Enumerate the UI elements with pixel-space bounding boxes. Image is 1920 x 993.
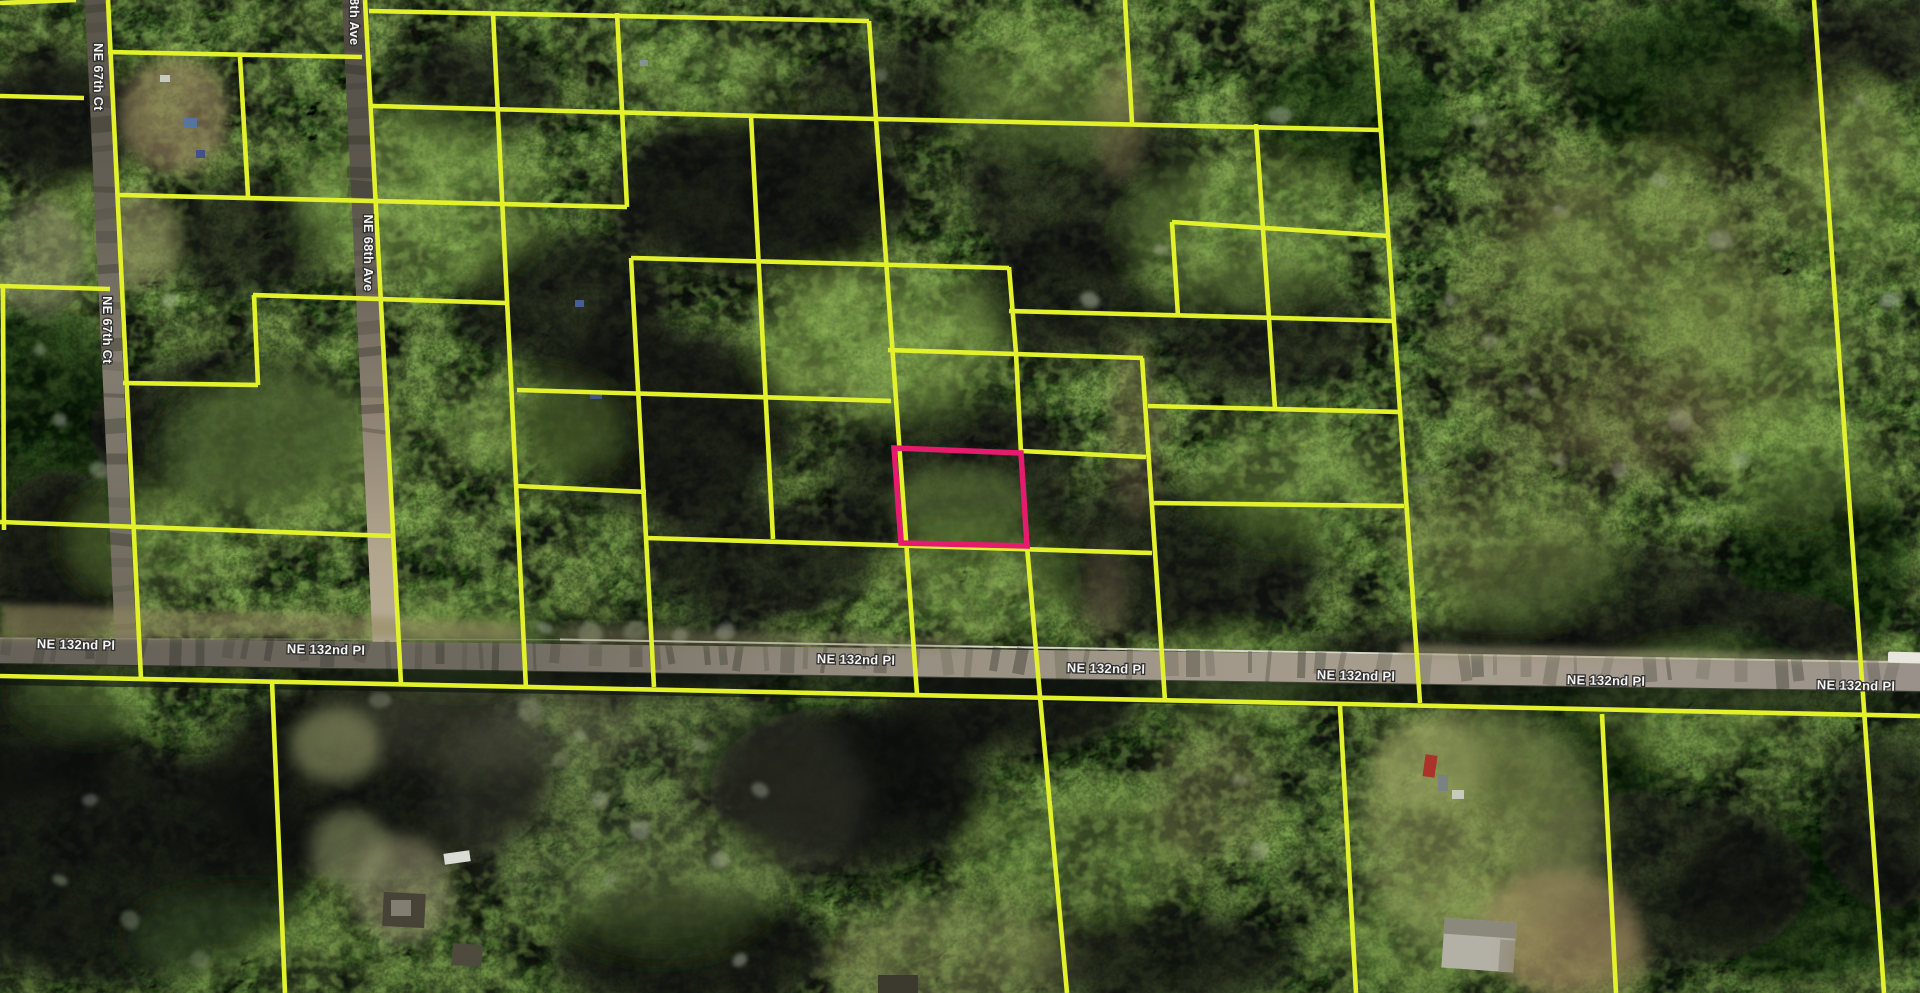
svg-text:68th Ave: 68th Ave <box>347 0 362 45</box>
svg-text:NE 132nd Pl: NE 132nd Pl <box>287 641 366 658</box>
svg-text:NE 132nd Pl: NE 132nd Pl <box>1567 672 1646 689</box>
svg-text:NE 132nd Pl: NE 132nd Pl <box>37 636 116 653</box>
svg-text:NE 132nd Pl: NE 132nd Pl <box>1067 660 1146 677</box>
svg-text:NE 68th Ave: NE 68th Ave <box>361 214 376 291</box>
svg-text:NE 67th Ct: NE 67th Ct <box>91 43 106 111</box>
svg-text:NE 132nd Pl: NE 132nd Pl <box>1317 667 1396 684</box>
svg-text:NE 132nd Pl: NE 132nd Pl <box>817 651 896 668</box>
svg-text:NE 67th Ct: NE 67th Ct <box>100 296 115 364</box>
svg-text:NE 132nd Pl: NE 132nd Pl <box>1817 677 1896 694</box>
